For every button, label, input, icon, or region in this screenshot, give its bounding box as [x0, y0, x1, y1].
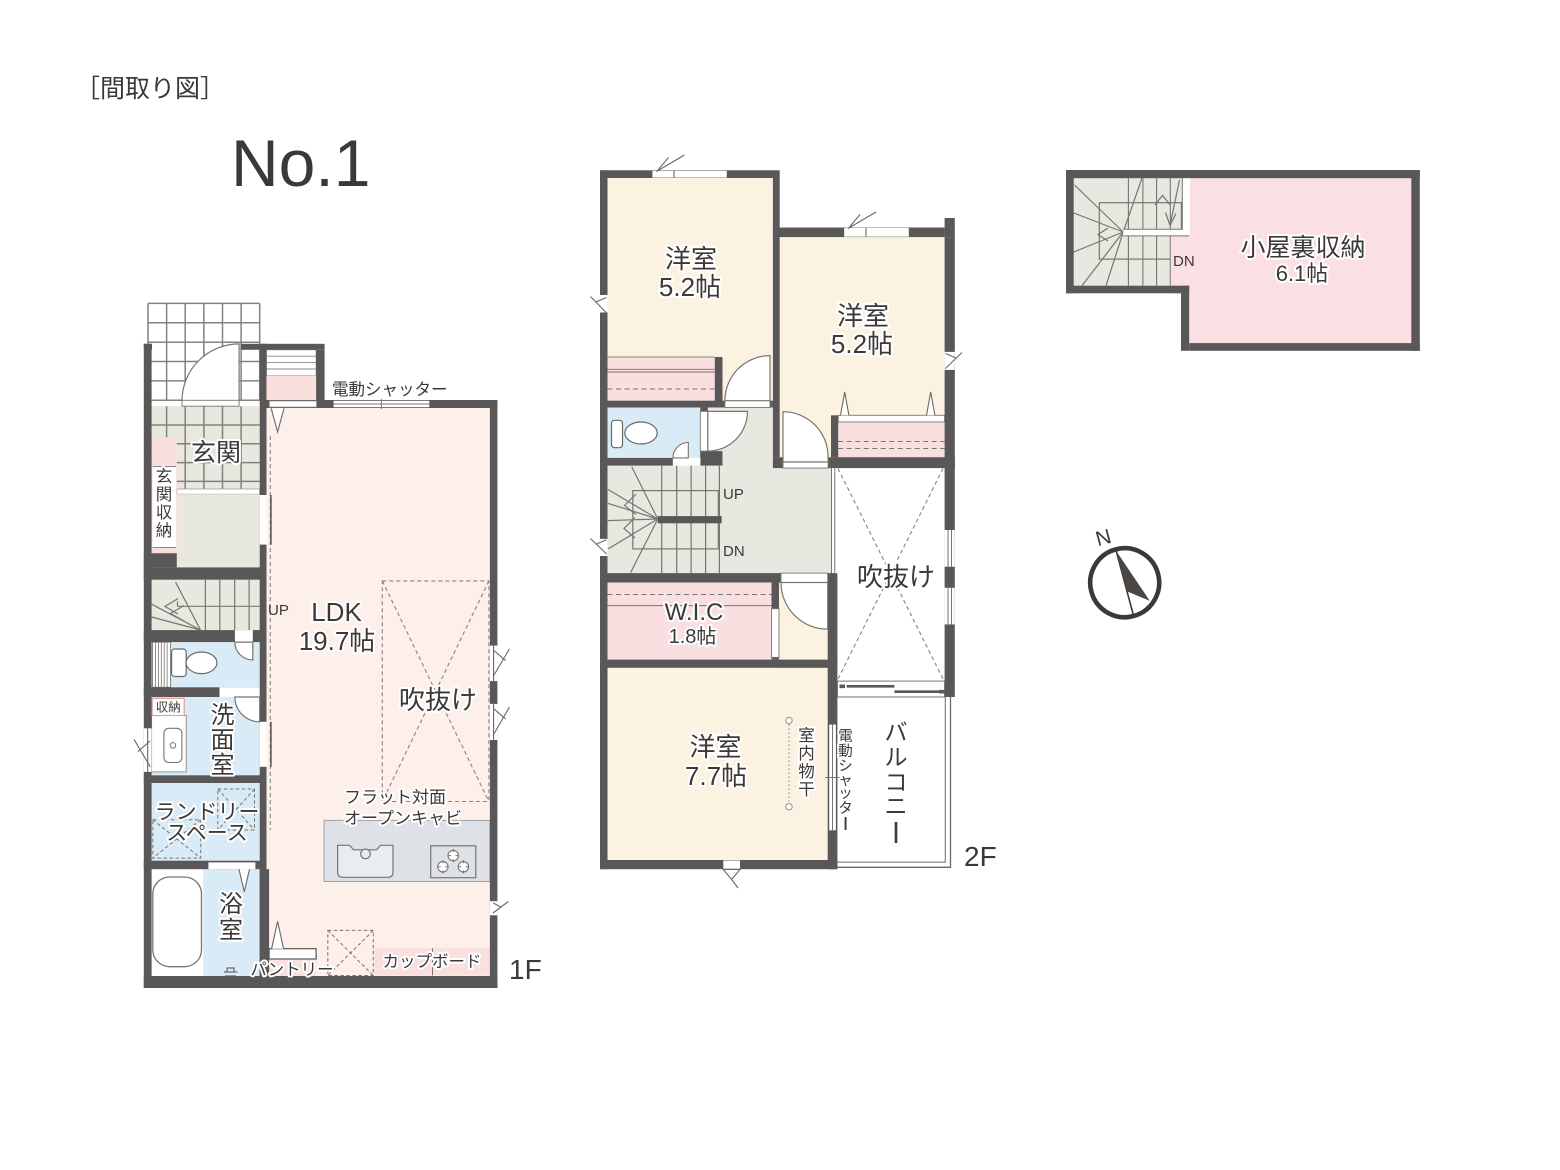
- svg-text:DN: DN: [723, 543, 745, 560]
- svg-text:LDK: LDK: [311, 597, 362, 627]
- svg-text:5.2帖: 5.2帖: [831, 329, 893, 359]
- svg-text:関: 関: [156, 486, 173, 504]
- svg-text:内: 内: [798, 744, 815, 763]
- svg-text:物: 物: [798, 762, 815, 781]
- svg-text:室: 室: [211, 752, 235, 779]
- svg-text:吹抜け: 吹抜け: [857, 562, 935, 592]
- svg-text:7.7帖: 7.7帖: [685, 761, 747, 791]
- svg-text:バ: バ: [885, 719, 908, 745]
- svg-text:UP: UP: [268, 602, 289, 619]
- svg-text:UP: UP: [723, 486, 744, 503]
- svg-text:パントリー: パントリー: [250, 961, 333, 979]
- svg-text:タ: タ: [838, 800, 853, 817]
- svg-text:ッ: ッ: [838, 786, 853, 802]
- svg-text:ニ: ニ: [885, 793, 908, 819]
- svg-text:1F: 1F: [509, 954, 542, 985]
- svg-text:洋室: 洋室: [837, 301, 889, 331]
- svg-text:カップボード: カップボード: [383, 952, 482, 971]
- svg-text:収納: 収納: [156, 701, 181, 715]
- svg-text:［間取り図］: ［間取り図］: [75, 75, 225, 103]
- svg-text:DN: DN: [1173, 253, 1195, 270]
- svg-text:コ: コ: [885, 769, 908, 795]
- svg-text:ランドリー: ランドリー: [155, 801, 260, 824]
- svg-text:W.I.C: W.I.C: [665, 599, 724, 626]
- svg-text:小屋裏収納: 小屋裏収納: [1240, 234, 1365, 262]
- svg-text:フラット対面: フラット対面: [344, 788, 446, 807]
- svg-text:動: 動: [838, 743, 853, 760]
- svg-text:納: 納: [156, 521, 173, 540]
- svg-text:No.1: No.1: [231, 126, 370, 200]
- svg-text:19.7帖: 19.7帖: [299, 626, 376, 656]
- svg-text:吹抜け: 吹抜け: [399, 685, 477, 715]
- svg-text:6.1帖: 6.1帖: [1276, 261, 1329, 286]
- svg-text:玄関: 玄関: [191, 439, 241, 467]
- svg-text:ル: ル: [885, 744, 908, 770]
- svg-text:電: 電: [838, 729, 853, 745]
- svg-text:洋室: 洋室: [689, 732, 741, 762]
- svg-text:オープンキャビ: オープンキャビ: [344, 809, 462, 828]
- svg-text:電動シャッター: 電動シャッター: [332, 380, 448, 399]
- svg-text:浴: 浴: [219, 891, 243, 918]
- svg-text:洗: 洗: [211, 702, 235, 729]
- svg-text:5.2帖: 5.2帖: [659, 272, 721, 302]
- svg-text:洋室: 洋室: [665, 244, 717, 274]
- svg-text:2F: 2F: [964, 841, 997, 872]
- svg-text:面: 面: [211, 727, 235, 754]
- svg-text:スペース: スペース: [166, 822, 247, 845]
- svg-text:玄: 玄: [156, 467, 173, 486]
- svg-text:収: 収: [156, 503, 173, 522]
- svg-text:室: 室: [798, 726, 815, 745]
- svg-text:1.8帖: 1.8帖: [669, 625, 717, 648]
- svg-text:干: 干: [798, 781, 815, 799]
- svg-text:室: 室: [219, 917, 243, 944]
